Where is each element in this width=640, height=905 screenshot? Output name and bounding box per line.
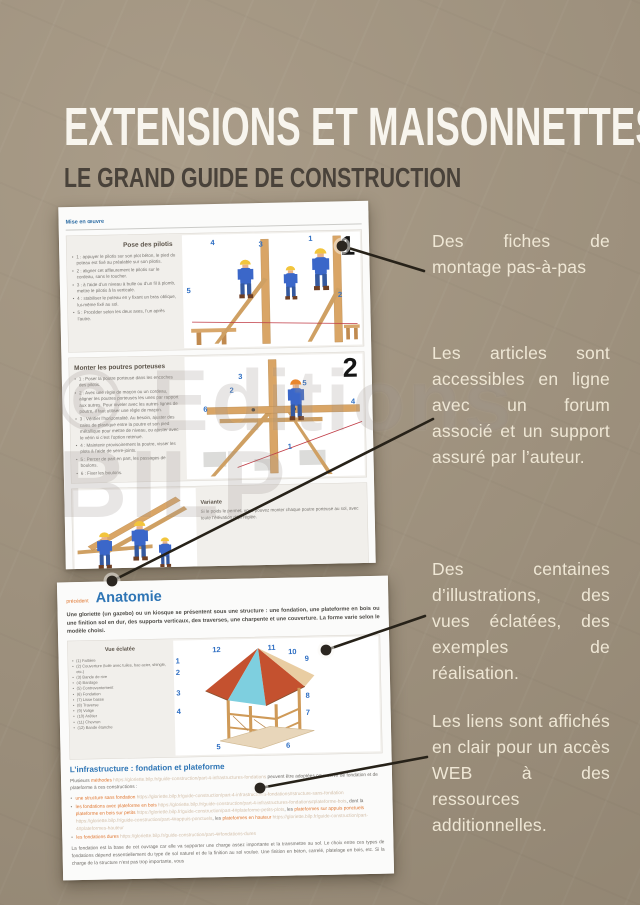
step-bullet: 4 : Maintenir provisoirement la poutre, …	[76, 440, 180, 455]
screenshot-fiches-montage: Mise en œuvre Pose des pilotis 1 : appuy…	[58, 201, 376, 569]
annotation-illustrations: Des centaines d’illustrations, des vues …	[432, 556, 610, 686]
step-bullet: 1 : appuyer le pilotis sur son plot béto…	[72, 252, 176, 267]
step-bullet: 3 : Vérifier l’horizontalité. Au besoin,…	[75, 414, 179, 441]
figure-number: 2	[230, 387, 234, 395]
step-bullet: 3 : à l’aide d’un niveau à bulle ou d’un…	[72, 280, 176, 295]
annotation-fiches-montage: Des fiches de montage pas-à-pas	[432, 228, 610, 280]
page-title: EXTENSIONS ET MAISONNETTES	[64, 100, 640, 154]
step-bullet: 2 : aligner cet affleurement le pilotis …	[72, 266, 176, 281]
figure-number: 1	[288, 443, 292, 451]
figure-number: 9	[305, 655, 309, 663]
step-bullet: 6 : Fixer les boulons.	[76, 468, 180, 476]
portage-drawing	[73, 488, 197, 569]
figure-number: 11	[268, 644, 276, 652]
figure-number: 1	[308, 235, 312, 243]
figure-number: 5	[216, 743, 220, 751]
article-intro: Une gloriette (un gazebo) ou un kiosque …	[67, 604, 380, 635]
illustration-pose-pilotis: 43152 1	[182, 231, 362, 348]
text-segment[interactable]: méthodes	[91, 777, 112, 783]
figure-number: 4	[351, 398, 355, 406]
illustration-gazebo-eclate: 123456789101112	[173, 636, 380, 755]
figure-number: 2	[338, 291, 342, 299]
exploded-parts-list: Vue éclatée (1) Faîtière(2) Couverture (…	[68, 639, 174, 759]
step-1-instructions: Pose des pilotis 1 : appuyer le pilotis …	[66, 234, 182, 352]
text-segment[interactable]: https://gloriette.bilp.fr/guide-construc…	[76, 816, 213, 824]
figure-number: 12	[212, 646, 220, 654]
text-segment[interactable]: plateformes en hauteur	[222, 815, 271, 822]
breadcrumb: Mise en œuvre	[65, 211, 361, 231]
text-segment[interactable]: plateforme en bois sur petits	[76, 810, 136, 817]
step-2-instructions: Monter les poutres porteuses 1 : Poser l…	[69, 356, 186, 483]
step-big-number-2: 2	[342, 354, 358, 383]
text-segment[interactable]: une structure sans fondation	[75, 794, 135, 801]
step-bullet: 4 : stabiliser le poteau en y fixant un …	[73, 294, 177, 309]
step-panel-2: Monter les poutres porteuses 1 : Poser l…	[68, 351, 367, 483]
text-segment[interactable]: les fondations dures	[76, 834, 119, 840]
step-bullet: 5 : Procéder selon les deux axes, l’un a…	[73, 307, 177, 322]
figure-number: 3	[238, 373, 242, 381]
step-1-bullet-list: 1 : appuyer le pilotis sur son plot béto…	[72, 252, 177, 322]
figure-number: 4	[177, 708, 181, 716]
article-title-row: précédent Anatomie	[66, 584, 379, 607]
part-item: (12) Bande étanche	[73, 723, 169, 731]
figure-number: 10	[288, 648, 296, 656]
step-1-heading: Pose des pilotis	[71, 240, 175, 250]
figure-numbers: 43152	[182, 231, 362, 348]
step-2-bullet-list: 1 : Poser la poutre porteuse dans les en…	[74, 374, 180, 477]
infrastructure-links-list: une structure sans fondation https://glo…	[70, 789, 384, 842]
step-bullet: 2 : Avec une règle de maçon ou un cordea…	[75, 388, 179, 415]
figure-number: 7	[306, 709, 310, 717]
figure-number: 5	[186, 287, 190, 295]
text-segment[interactable]: plateformes sur appuis ponctuels	[294, 805, 364, 812]
variante-text-block: Variante Si le poids le permet, vous pou…	[197, 483, 368, 569]
figure-number: 4	[210, 239, 214, 247]
step-big-number-1: 1	[340, 232, 356, 261]
page-subtitle: LE GRAND GUIDE DE CONSTRUCTION	[64, 164, 461, 192]
infrastructure-footer: La fondation est la base de cet ouvrage …	[71, 839, 384, 868]
exploded-heading: Vue éclatée	[72, 645, 168, 653]
annotation-liens-web: Les liens sont affichés en clair pour un…	[432, 708, 610, 838]
text-segment[interactable]: https://gloriette.bilp.fr/guide-construc…	[119, 831, 256, 839]
text-segment[interactable]: , dont la	[346, 798, 363, 804]
figure-number: 5	[302, 379, 306, 387]
variante-paragraph: Si le poids le permet, vous pouvez monte…	[201, 505, 361, 521]
text-segment[interactable]: https://gloriette.bilp.fr/guide-construc…	[112, 774, 267, 783]
annotation-articles-en-ligne: Les articles sont accessibles en ligne a…	[432, 340, 610, 470]
step-bullet: 1 : Poser la poutre porteuse dans les en…	[74, 374, 178, 389]
step-2-heading: Monter les poutres porteuses	[74, 362, 178, 372]
parts-list: (1) Faîtière(2) Couverture (toile avec t…	[72, 656, 170, 731]
figure-numbers: 123456789101112	[173, 636, 380, 755]
variante-panel: Variante Si le poids le permet, vous pou…	[71, 482, 369, 569]
figure-number: 8	[305, 692, 309, 700]
text-segment[interactable]: Plusieurs	[70, 778, 91, 784]
text-segment[interactable]: , les	[212, 816, 222, 822]
figure-number: 3	[176, 690, 180, 698]
mise-en-oeuvre-link[interactable]: Mise en œuvre	[65, 218, 104, 225]
illustration-portage-poutre	[73, 488, 197, 569]
step-panel-1: Pose des pilotis 1 : appuyer le pilotis …	[66, 229, 364, 352]
illustration-poutres-porteuses: 325641 2	[184, 353, 365, 479]
figure-number: 1	[176, 657, 180, 665]
article-title: Anatomie	[96, 588, 162, 605]
variante-heading: Variante	[200, 496, 360, 505]
figure-number: 6	[203, 406, 207, 414]
figure-number: 2	[176, 669, 180, 677]
step-bullet: 5 : Percer de part en part, les passages…	[76, 454, 180, 469]
exploded-view-panel: Vue éclatée (1) Faîtière(2) Couverture (…	[67, 634, 382, 760]
previous-article-link[interactable]: précédent	[66, 598, 88, 604]
figure-numbers: 325641	[184, 353, 365, 479]
figure-number: 3	[259, 240, 263, 248]
text-segment[interactable]: , les	[284, 807, 294, 813]
screenshot-anatomie: précédent Anatomie Une gloriette (un gaz…	[57, 576, 394, 881]
text-segment[interactable]: les fondations avec plateforme en bois	[76, 802, 157, 809]
figure-number: 6	[286, 741, 290, 749]
